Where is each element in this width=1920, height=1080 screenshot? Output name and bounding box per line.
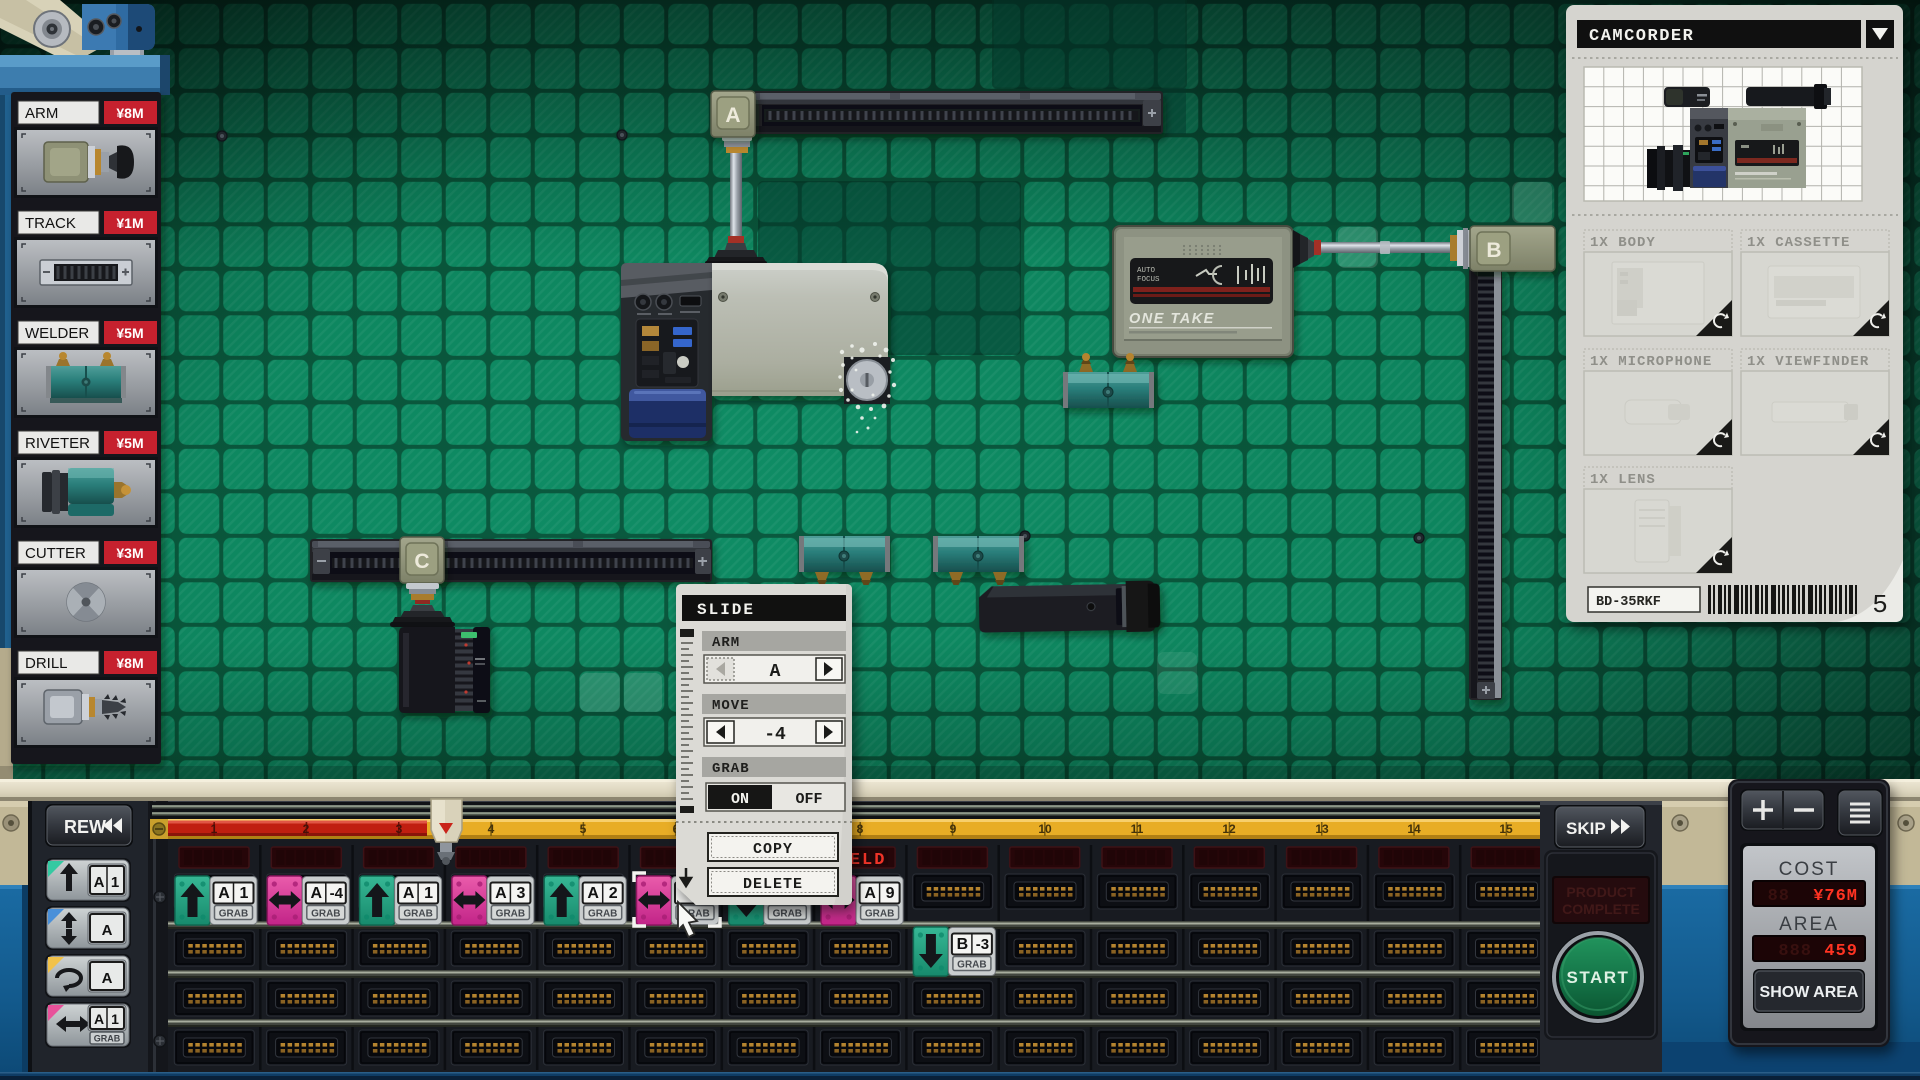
svg-text:A: A — [770, 662, 781, 682]
svg-text:4: 4 — [488, 822, 495, 836]
svg-text:A: A — [311, 885, 323, 902]
svg-text:2: 2 — [303, 822, 310, 836]
svg-text:¥76M: ¥76M — [1813, 887, 1858, 906]
svg-text:A: A — [403, 885, 415, 902]
svg-text:15: 15 — [1499, 822, 1513, 836]
svg-text:SKIP: SKIP — [1566, 819, 1606, 838]
svg-text:10: 10 — [1038, 822, 1052, 836]
svg-text:3: 3 — [396, 822, 403, 836]
svg-text:ARM: ARM — [25, 105, 58, 122]
svg-text:1X LENS: 1X LENS — [1590, 472, 1656, 488]
svg-text:11: 11 — [1131, 822, 1144, 836]
svg-text:3: 3 — [516, 885, 525, 902]
svg-text:A: A — [495, 885, 507, 902]
svg-text:A: A — [864, 885, 876, 902]
svg-text:88: 88 — [1768, 887, 1790, 906]
svg-text:DELETE: DELETE — [743, 876, 803, 893]
svg-text:PRODUCT: PRODUCT — [1566, 884, 1636, 900]
svg-text:CUTTER: CUTTER — [25, 545, 86, 562]
svg-text:FOCUS: FOCUS — [1137, 276, 1160, 284]
svg-text:¥3M: ¥3M — [116, 545, 143, 561]
svg-text:A: A — [218, 885, 230, 902]
svg-text:2: 2 — [609, 885, 618, 902]
svg-text:1: 1 — [211, 822, 218, 836]
svg-text:B: B — [1486, 239, 1501, 262]
svg-text:1X BODY: 1X BODY — [1590, 235, 1656, 251]
svg-text:MOVE: MOVE — [712, 698, 750, 714]
svg-text:GRAB: GRAB — [94, 1034, 121, 1044]
svg-text:AUTO: AUTO — [1137, 267, 1156, 275]
svg-text:9: 9 — [886, 885, 895, 902]
svg-text:5: 5 — [1872, 590, 1888, 620]
svg-text:B: B — [957, 936, 969, 953]
svg-text:8: 8 — [857, 822, 864, 836]
svg-text:REW: REW — [64, 817, 106, 837]
svg-text:GRAB: GRAB — [712, 761, 750, 777]
svg-text:1: 1 — [111, 874, 119, 891]
svg-text:1X MICROPHONE: 1X MICROPHONE — [1590, 354, 1712, 370]
svg-text:ARM: ARM — [712, 635, 740, 651]
svg-text:¥5M: ¥5M — [116, 435, 143, 451]
svg-text:14: 14 — [1407, 822, 1421, 836]
svg-text:COST: COST — [1779, 859, 1840, 880]
svg-text:A: A — [94, 1011, 104, 1027]
svg-text:¥8M: ¥8M — [116, 105, 143, 121]
svg-text:A: A — [587, 885, 599, 902]
svg-text:1: 1 — [240, 885, 249, 902]
svg-text:AREA: AREA — [1779, 914, 1839, 935]
svg-text:SHOW AREA: SHOW AREA — [1760, 984, 1859, 1001]
svg-text:TRACK: TRACK — [25, 215, 76, 232]
svg-text:COMPLETE: COMPLETE — [1562, 901, 1640, 917]
svg-text:C: C — [414, 550, 429, 573]
svg-text:A: A — [725, 104, 740, 127]
svg-text:A: A — [102, 970, 113, 987]
svg-text:1: 1 — [424, 885, 433, 902]
svg-text:12: 12 — [1222, 822, 1236, 836]
svg-text:BD-35RKF: BD-35RKF — [1596, 595, 1661, 610]
svg-text:5: 5 — [580, 822, 587, 836]
svg-text:1: 1 — [111, 1011, 119, 1027]
svg-text:OFF: OFF — [795, 791, 822, 808]
svg-text:-3: -3 — [976, 936, 989, 953]
svg-text:SLIDE: SLIDE — [697, 601, 755, 619]
svg-text:COPY: COPY — [753, 841, 793, 858]
svg-text:1X VIEWFINDER: 1X VIEWFINDER — [1747, 354, 1869, 370]
svg-text:459: 459 — [1824, 942, 1858, 961]
svg-text:888: 888 — [1778, 942, 1812, 961]
svg-text:-4: -4 — [764, 725, 786, 745]
svg-text:A: A — [94, 874, 105, 891]
svg-text:13: 13 — [1315, 822, 1329, 836]
svg-text:¥1M: ¥1M — [116, 215, 143, 231]
svg-text:A: A — [102, 922, 113, 939]
svg-text:1X CASSETTE: 1X CASSETTE — [1747, 235, 1850, 251]
svg-text:ONE TAKE: ONE TAKE — [1129, 311, 1215, 327]
svg-text:-4: -4 — [330, 885, 344, 902]
svg-text:9: 9 — [950, 822, 957, 836]
svg-text:START: START — [1567, 968, 1630, 987]
svg-text:¥5M: ¥5M — [116, 325, 143, 341]
svg-text:DRILL: DRILL — [25, 655, 68, 672]
svg-text:¥8M: ¥8M — [116, 655, 143, 671]
svg-text:ON: ON — [731, 791, 749, 808]
svg-text:RIVETER: RIVETER — [25, 435, 90, 452]
svg-text:CAMCORDER: CAMCORDER — [1589, 27, 1694, 46]
svg-text:WELDER: WELDER — [25, 325, 89, 342]
